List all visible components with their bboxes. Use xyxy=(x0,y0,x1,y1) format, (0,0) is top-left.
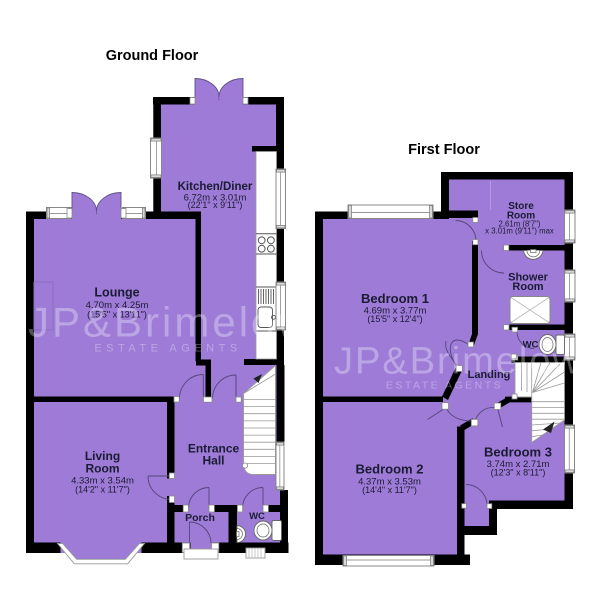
svg-text:(14'2" x 11'7"): (14'2" x 11'7") xyxy=(75,485,130,495)
svg-text:(22'1" x 9'11"): (22'1" x 9'11") xyxy=(188,200,243,210)
svg-text:WC: WC xyxy=(249,511,265,522)
svg-text:Kitchen/Diner: Kitchen/Diner xyxy=(178,181,253,193)
svg-text:Bedroom 1: Bedroom 1 xyxy=(361,291,429,306)
svg-text:Lounge: Lounge xyxy=(94,286,139,300)
svg-text:Bedroom 2: Bedroom 2 xyxy=(356,462,424,477)
svg-text:ESTATE AGENTS: ESTATE AGENTS xyxy=(94,343,241,355)
svg-text:Room: Room xyxy=(86,461,120,475)
svg-text:Porch: Porch xyxy=(185,512,215,524)
svg-text:x 3.01m (9'11") max: x 3.01m (9'11") max xyxy=(485,227,554,236)
svg-text:ESTATE AGENTS: ESTATE AGENTS xyxy=(386,380,503,392)
svg-text:(12'3" x 8'11"): (12'3" x 8'11") xyxy=(491,467,546,477)
svg-text:Bedroom 3: Bedroom 3 xyxy=(484,445,552,460)
svg-text:Hall: Hall xyxy=(202,454,224,468)
svg-text:Ground Floor: Ground Floor xyxy=(106,48,199,64)
svg-text:(14'4" x 11'7"): (14'4" x 11'7") xyxy=(362,485,417,495)
svg-text:Room: Room xyxy=(512,281,543,293)
svg-text:First Floor: First Floor xyxy=(408,142,480,158)
svg-text:(15'5" x 12'4"): (15'5" x 12'4") xyxy=(367,314,422,324)
svg-text:JP&Brimelow: JP&Brimelow xyxy=(28,299,311,346)
svg-text:JP&Brimelow: JP&Brimelow xyxy=(334,341,582,383)
